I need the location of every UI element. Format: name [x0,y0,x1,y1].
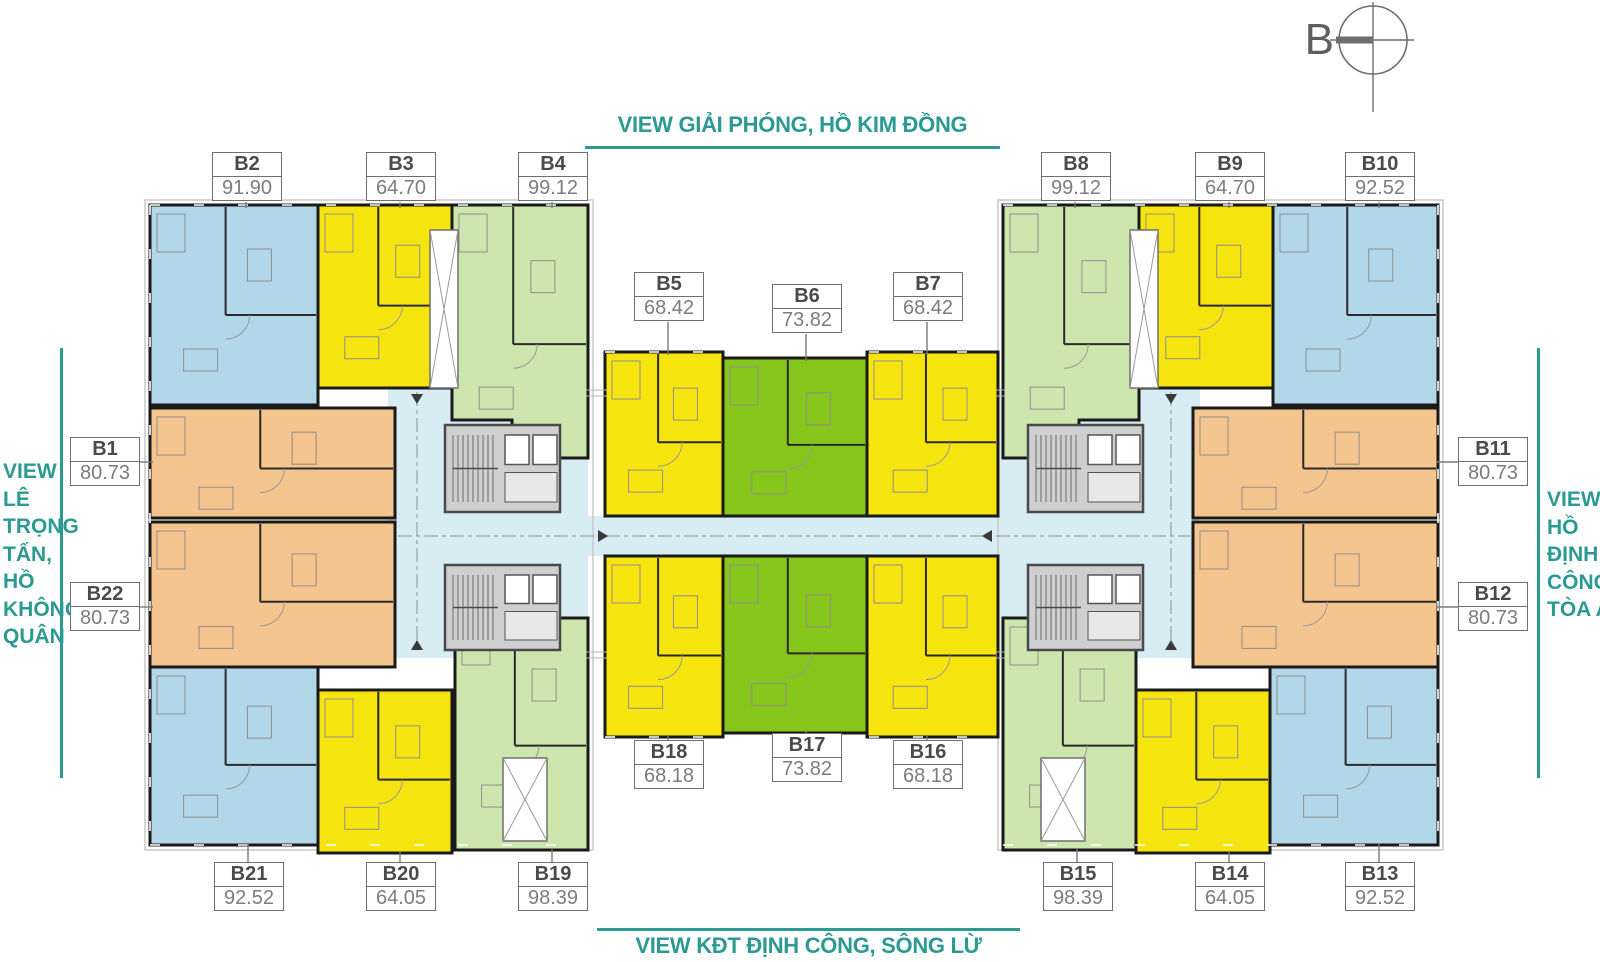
unit-area: 92.52 [1346,887,1414,910]
unit-label-B2: B291.90 [212,152,282,201]
unit-label-B4: B499.12 [518,152,588,201]
unit-area: 92.52 [215,887,283,910]
unit-area: 73.82 [773,758,841,781]
unit-area: 80.73 [71,607,139,630]
unit-area: 68.42 [894,297,962,320]
compass-letter: B [1305,15,1334,64]
unit-id: B9 [1196,153,1264,177]
unit-label-B16: B1668.18 [893,740,963,789]
unit-label-B21: B2192.52 [214,862,284,911]
unit-id: B11 [1459,438,1527,462]
unit-label-B18: B1868.18 [634,740,704,789]
view-text-line: ĐỊNH [1547,541,1600,569]
unit-id: B6 [773,285,841,309]
unit-label-B5: B568.42 [634,272,704,321]
unit-area: 68.18 [635,765,703,788]
view-text-line: LÊ [3,486,81,514]
view-divider-left [60,348,63,778]
unit-label-B10: B1092.52 [1345,152,1415,201]
unit-label-B1: B180.73 [70,437,140,486]
unit-id: B4 [519,153,587,177]
unit-label-B14: B1464.05 [1195,862,1265,911]
unit-area: 64.05 [1196,887,1264,910]
unit-id: B17 [773,734,841,758]
unit-id: B5 [635,273,703,297]
unit-id: B8 [1042,153,1110,177]
unit-id: B15 [1044,863,1112,887]
floorplan-drawing: B [0,0,1600,962]
unit-area: 98.39 [1044,887,1112,910]
unit-label-B6: B673.82 [772,284,842,333]
unit-id: B14 [1196,863,1264,887]
view-text-line: HỒ [1547,514,1600,542]
unit-area: 68.18 [894,765,962,788]
unit-area: 92.52 [1346,177,1414,200]
unit-area: 68.42 [635,297,703,320]
unit-area: 80.73 [1459,607,1527,630]
unit-area: 64.70 [367,177,435,200]
unit-label-B15: B1598.39 [1043,862,1113,911]
unit-id: B10 [1346,153,1414,177]
unit-label-B19: B1998.39 [518,862,588,911]
view-text-line: TÒA A [1547,596,1600,624]
unit-label-B20: B2064.05 [366,862,436,911]
unit-label-B17: B1773.82 [772,733,842,782]
unit-label-B9: B964.70 [1195,152,1265,201]
unit-id: B22 [71,583,139,607]
unit-id: B12 [1459,583,1527,607]
view-label-bottom: VIEW KĐT ĐỊNH CÔNG, SÔNG LỪ [597,933,1020,959]
view-text-line: TRỌNG [3,513,81,541]
unit-label-B11: B1180.73 [1458,437,1528,486]
unit-id: B3 [367,153,435,177]
unit-label-B13: B1392.52 [1345,862,1415,911]
unit-area: 64.70 [1196,177,1264,200]
view-divider-right [1537,348,1540,778]
view-text-line: VIEW [1547,486,1600,514]
unit-id: B19 [519,863,587,887]
unit-id: B18 [635,741,703,765]
unit-id: B13 [1346,863,1414,887]
unit-area: 80.73 [1459,462,1527,485]
unit-id: B20 [367,863,435,887]
unit-label-B7: B768.42 [893,272,963,321]
view-text-line: TẤN, [3,541,81,569]
unit-area: 99.12 [519,177,587,200]
unit-label-B3: B364.70 [366,152,436,201]
unit-area: 64.05 [367,887,435,910]
unit-area: 80.73 [71,462,139,485]
unit-label-B12: B1280.73 [1458,582,1528,631]
view-text-line: CÔNG, [1547,569,1600,597]
view-divider-top [585,146,1000,149]
floorplan-canvas: B VIEW GIẢI PHÓNG, HỒ KIM ĐỒNG VIEW KĐT … [0,0,1600,962]
unit-area: 98.39 [519,887,587,910]
unit-area: 91.90 [213,177,281,200]
view-divider-bottom [597,928,1020,931]
view-label-top: VIEW GIẢI PHÓNG, HỒ KIM ĐỒNG [585,112,1000,138]
unit-id: B16 [894,741,962,765]
unit-label-B22: B2280.73 [70,582,140,631]
view-label-right: VIEWHỒĐỊNHCÔNG,TÒA A [1547,486,1600,624]
unit-id: B1 [71,438,139,462]
unit-id: B21 [215,863,283,887]
unit-area: 73.82 [773,309,841,332]
unit-id: B2 [213,153,281,177]
unit-id: B7 [894,273,962,297]
unit-area: 99.12 [1042,177,1110,200]
unit-label-B8: B899.12 [1041,152,1111,201]
